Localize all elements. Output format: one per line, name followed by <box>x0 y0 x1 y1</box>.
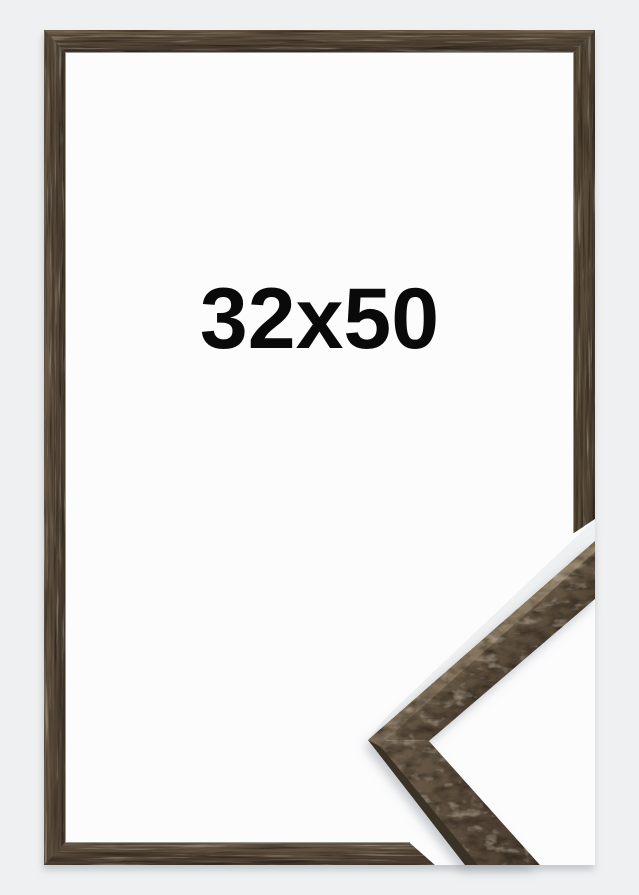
picture-frame <box>44 30 595 865</box>
frame-border-left <box>44 30 65 865</box>
size-label: 32x50 <box>0 254 639 384</box>
frame-graphic <box>0 0 639 895</box>
frame-border-bottom <box>44 843 435 865</box>
frame-border-top <box>44 30 595 52</box>
frame-glass-area <box>65 52 595 865</box>
frame-product-image: 32x50 <box>0 0 639 895</box>
